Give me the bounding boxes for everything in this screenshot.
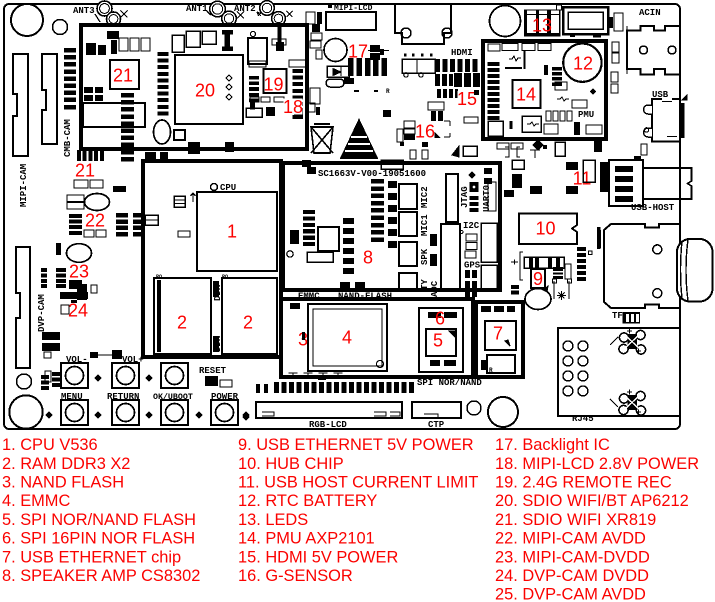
svg-text:ADC: ADC [430,280,440,297]
svg-text:5. SPI NOR/NAND FLASH: 5. SPI NOR/NAND FLASH [2,511,196,529]
svg-text:HDMI: HDMI [451,48,473,58]
svg-text:11: 11 [573,168,592,188]
svg-text:18: 18 [283,97,303,117]
svg-text:21. SDIO WIFI XR819: 21. SDIO WIFI XR819 [495,511,656,529]
svg-text:CMB-CAM: CMB-CAM [63,119,73,157]
svg-text:2: 2 [243,312,253,332]
svg-text:15. HDMI 5V POWER: 15. HDMI 5V POWER [238,548,398,566]
svg-text:RESET: RESET [199,366,227,376]
svg-text:2: 2 [177,312,187,332]
svg-text:21: 21 [113,65,133,85]
svg-text:19: 19 [263,74,283,94]
svg-text:PMU: PMU [578,110,594,120]
svg-text:11. USB HOST CURRENT LIMIT: 11. USB HOST CURRENT LIMIT [238,474,478,492]
svg-text:3. NAND FLASH: 3. NAND FLASH [2,474,124,492]
svg-text:17. Backlight IC: 17. Backlight IC [495,436,610,454]
svg-text:12: 12 [573,53,593,73]
svg-text:SPK: SPK [420,248,430,265]
svg-text:5: 5 [433,330,443,350]
svg-text:9. USB ETHERNET 5V POWER: 9. USB ETHERNET 5V POWER [238,436,474,454]
svg-text:I2C: I2C [463,221,480,231]
svg-text:9: 9 [533,269,543,289]
svg-text:22: 22 [85,210,105,230]
svg-text:24. DVP-CAM DVDD: 24. DVP-CAM DVDD [495,567,649,585]
svg-text:7. USB ETHERNET chip: 7. USB ETHERNET chip [2,548,181,566]
svg-text:1: 1 [227,221,237,241]
svg-text:6: 6 [435,308,445,328]
svg-text:CTP: CTP [428,420,445,430]
svg-text:ACIN: ACIN [639,8,661,18]
svg-text:MIC1: MIC1 [420,214,430,236]
svg-text:ANT2: ANT2 [234,4,256,14]
svg-text:R: R [489,367,493,374]
svg-text:EMMC: EMMC [298,292,320,302]
svg-text:12. RTC BATTERY: 12. RTC BATTERY [238,492,377,510]
svg-text:RO: RO [222,274,228,280]
svg-text:22. MIPI-CAM AVDD: 22. MIPI-CAM AVDD [495,530,646,548]
svg-text:25. DVP-CAM AVDD: 25. DVP-CAM AVDD [495,586,646,602]
svg-text:8: 8 [363,247,373,267]
svg-text:DVP-CAM: DVP-CAM [37,294,47,332]
svg-text:8. SPEAKER AMP CS8302: 8. SPEAKER AMP CS8302 [2,567,200,585]
svg-text:MIC2: MIC2 [420,186,430,208]
svg-text:USB-HOST: USB-HOST [631,203,675,213]
svg-text:SPI NOR/NAND: SPI NOR/NAND [417,378,482,388]
svg-text:14. PMU AXP2101: 14. PMU AXP2101 [238,530,375,548]
svg-text:GPS: GPS [464,261,481,271]
svg-text:RGB-LCD: RGB-LCD [309,420,347,430]
svg-text:6. SPI 16PIN NOR FLASH: 6. SPI 16PIN NOR FLASH [2,530,195,548]
svg-text:23. MIPI-CAM-DVDD: 23. MIPI-CAM-DVDD [495,548,650,566]
svg-text:2. RAM DDR3 X2: 2. RAM DDR3 X2 [2,455,130,473]
svg-text:NAND-FLASH: NAND-FLASH [338,292,392,302]
svg-text:RO: RO [156,274,162,280]
svg-text:R: R [386,88,390,95]
svg-text:7: 7 [493,323,503,343]
svg-text:24: 24 [68,300,88,320]
svg-text:13: 13 [532,15,552,35]
svg-text:18. MIPI-LCD 2.8V POWER: 18. MIPI-LCD 2.8V POWER [495,455,699,473]
svg-text:MIPI-CAM: MIPI-CAM [19,164,29,207]
svg-text:TY: TY [420,279,430,290]
svg-text:13. LEDS: 13. LEDS [238,511,308,529]
svg-text:23: 23 [69,261,89,281]
svg-text:14: 14 [516,84,536,104]
svg-text:SC1663V-V00-19051600: SC1663V-V00-19051600 [318,169,426,179]
svg-text:UART0: UART0 [482,185,492,212]
svg-text:10. HUB CHIP: 10. HUB CHIP [238,455,344,473]
svg-text:TF: TF [612,311,623,321]
svg-text:10: 10 [535,218,555,238]
svg-text:16. G-SENSOR: 16. G-SENSOR [238,567,353,585]
svg-text:21: 21 [75,160,95,180]
svg-text:4. EMMC: 4. EMMC [2,492,70,510]
svg-text:1. CPU V536: 1. CPU V536 [2,436,98,454]
svg-text:ANT3: ANT3 [73,6,95,16]
svg-text:20. SDIO WIFI/BT AP6212: 20. SDIO WIFI/BT AP6212 [495,492,689,510]
svg-text:19. 2.4G REMOTE REC: 19. 2.4G REMOTE REC [495,474,672,492]
svg-text:4: 4 [342,327,352,347]
svg-text:20: 20 [195,80,215,100]
svg-text:ANT1: ANT1 [186,4,208,14]
svg-text:JTAG: JTAG [460,186,470,208]
svg-text:16: 16 [415,121,435,141]
